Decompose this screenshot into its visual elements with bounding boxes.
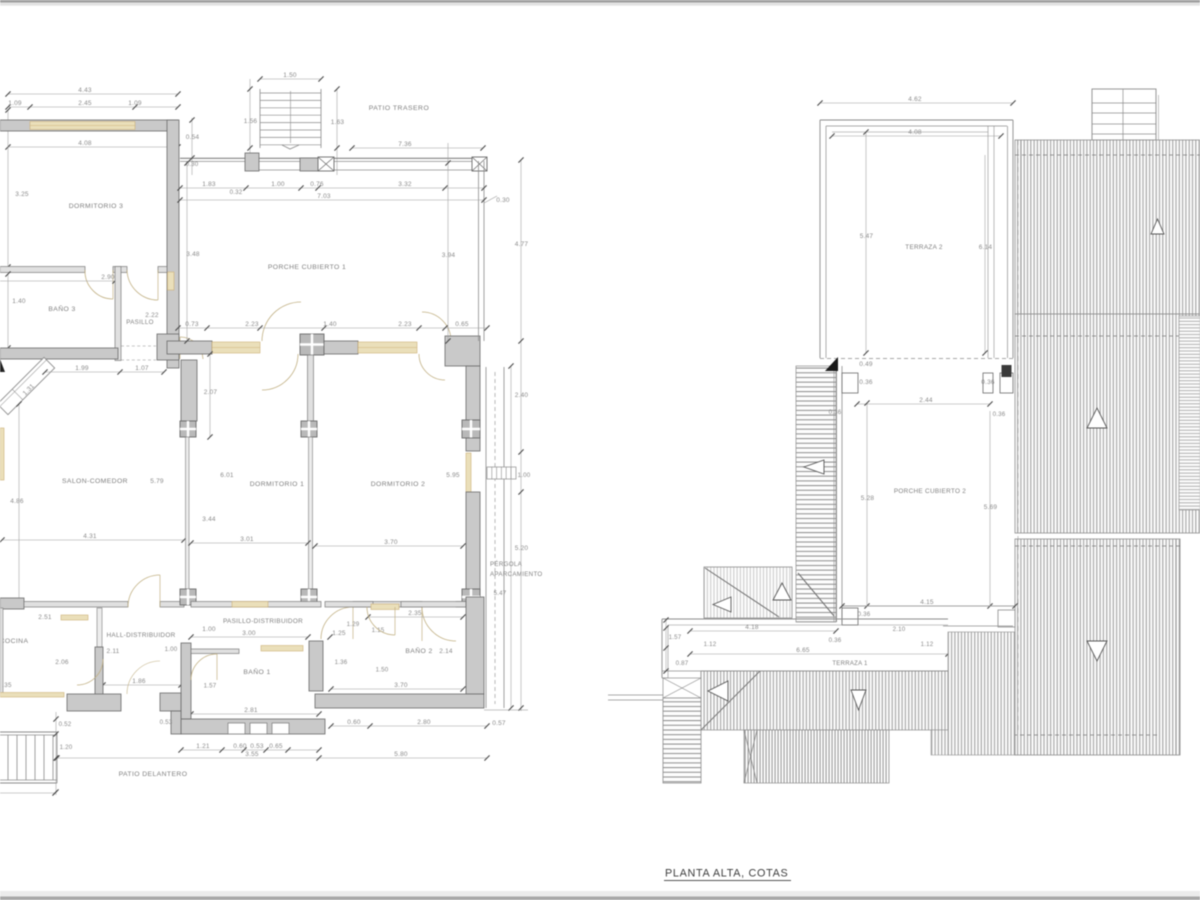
svg-text:4.18: 4.18: [745, 624, 759, 631]
svg-text:1.09: 1.09: [8, 100, 22, 107]
svg-text:2.06: 2.06: [55, 659, 69, 666]
svg-text:2.40: 2.40: [515, 392, 529, 399]
svg-text:5.47: 5.47: [860, 233, 874, 240]
svg-text:1.29: 1.29: [347, 621, 360, 628]
svg-text:1.00: 1.00: [165, 646, 178, 653]
svg-text:0.49: 0.49: [859, 361, 873, 368]
svg-text:2.90: 2.90: [101, 274, 115, 281]
svg-text:3.70: 3.70: [394, 682, 408, 689]
svg-text:1.00: 1.00: [271, 181, 285, 188]
svg-text:2.35: 2.35: [408, 610, 422, 617]
svg-text:4.08: 4.08: [908, 129, 922, 136]
svg-text:1.86: 1.86: [132, 678, 146, 685]
svg-text:COCINA: COCINA: [0, 638, 28, 645]
svg-text:PATIO TRASERO: PATIO TRASERO: [369, 105, 430, 112]
svg-text:0.54: 0.54: [186, 134, 200, 141]
svg-text:1.21: 1.21: [196, 743, 210, 750]
svg-text:1.56: 1.56: [244, 118, 258, 125]
svg-text:5.80: 5.80: [394, 751, 408, 758]
svg-text:1.20: 1.20: [60, 744, 73, 751]
svg-text:6.01: 6.01: [220, 472, 234, 479]
svg-text:4.15: 4.15: [920, 599, 934, 606]
svg-text:0.52: 0.52: [59, 721, 72, 728]
svg-text:2.51: 2.51: [38, 614, 52, 621]
svg-text:0.36: 0.36: [993, 411, 1006, 418]
svg-text:5.95: 5.95: [446, 472, 460, 479]
svg-text:PASILLO: PASILLO: [126, 319, 153, 326]
svg-text:3.70: 3.70: [384, 539, 398, 546]
svg-text:0.36: 0.36: [858, 611, 871, 618]
svg-text:6.14: 6.14: [979, 244, 993, 251]
svg-text:DORMITORIO 1: DORMITORIO 1: [250, 481, 305, 488]
svg-text:DORMITORIO 3: DORMITORIO 3: [69, 203, 124, 210]
svg-text:7.36: 7.36: [398, 141, 412, 148]
svg-text:0.36: 0.36: [829, 409, 842, 416]
svg-text:0.60: 0.60: [347, 719, 361, 726]
svg-text:1.40: 1.40: [12, 298, 26, 305]
svg-text:5.28: 5.28: [861, 495, 875, 502]
svg-text:2.81: 2.81: [244, 707, 258, 714]
svg-text:PATIO DELANTERO: PATIO DELANTERO: [119, 771, 188, 778]
svg-text:3.32: 3.32: [398, 181, 412, 188]
svg-text:1.00: 1.00: [202, 626, 216, 633]
svg-text:0.36: 0.36: [859, 379, 873, 386]
svg-text:1.25: 1.25: [332, 630, 346, 637]
svg-text:3.01: 3.01: [240, 536, 254, 543]
svg-text:0.53: 0.53: [250, 743, 264, 750]
svg-text:0.65: 0.65: [269, 743, 283, 750]
svg-text:2.11: 2.11: [107, 648, 120, 655]
svg-text:4.86: 4.86: [10, 498, 24, 505]
svg-text:1.12: 1.12: [921, 641, 934, 648]
svg-text:4.08: 4.08: [78, 140, 92, 147]
svg-text:SALON-COMEDOR: SALON-COMEDOR: [62, 478, 128, 485]
svg-text:1.15: 1.15: [372, 627, 385, 634]
svg-text:.35: .35: [2, 682, 12, 689]
svg-text:2.07: 2.07: [204, 389, 218, 396]
svg-text:BAÑO 1: BAÑO 1: [243, 667, 270, 676]
svg-text:0.87: 0.87: [676, 660, 689, 667]
svg-text:0.36: 0.36: [829, 637, 842, 644]
svg-text:PÉRGOLA: PÉRGOLA: [490, 561, 523, 568]
svg-text:2.23: 2.23: [245, 321, 259, 328]
svg-text:1.63: 1.63: [331, 119, 345, 126]
svg-text:PORCHE CUBIERTO 2: PORCHE CUBIERTO 2: [894, 488, 966, 495]
svg-text:4.62: 4.62: [908, 96, 922, 103]
svg-text:5.79: 5.79: [150, 478, 164, 485]
svg-text:3.44: 3.44: [202, 516, 216, 523]
svg-text:3.25: 3.25: [15, 191, 29, 198]
svg-text:TERRAZA 2: TERRAZA 2: [905, 244, 943, 251]
svg-text:BAÑO 3: BAÑO 3: [48, 304, 75, 313]
svg-text:2.14: 2.14: [439, 648, 453, 655]
svg-text:HALL-DISTRIBUIDOR: HALL-DISTRIBUIDOR: [106, 632, 175, 639]
svg-text:0.30: 0.30: [496, 197, 510, 204]
svg-text:TERRAZA 1: TERRAZA 1: [832, 661, 868, 667]
svg-text:APARCAMIENTO: APARCAMIENTO: [490, 571, 543, 578]
svg-text:2.10: 2.10: [893, 626, 906, 633]
svg-text:0.32: 0.32: [230, 189, 243, 196]
svg-text:1.50: 1.50: [376, 667, 389, 674]
svg-text:1.57: 1.57: [204, 683, 217, 690]
svg-text:2.22: 2.22: [145, 312, 159, 319]
svg-text:0.57: 0.57: [492, 720, 506, 727]
svg-text:5.47: 5.47: [494, 590, 507, 597]
svg-text:0.36: 0.36: [981, 379, 995, 386]
svg-text:2.23: 2.23: [398, 321, 412, 328]
svg-text:4.31: 4.31: [83, 533, 97, 540]
svg-text:7.03: 7.03: [317, 193, 331, 200]
svg-text:1.00: 1.00: [518, 472, 531, 479]
svg-text:0.76: 0.76: [310, 181, 324, 188]
svg-text:1.99: 1.99: [75, 365, 89, 372]
svg-text:DORMITORIO 2: DORMITORIO 2: [371, 481, 426, 488]
svg-text:2.45: 2.45: [78, 100, 92, 107]
svg-text:3.94: 3.94: [442, 252, 456, 259]
svg-text:4.77: 4.77: [515, 241, 529, 248]
svg-text:PLANTA ALTA, COTAS: PLANTA ALTA, COTAS: [665, 868, 788, 880]
svg-text:1.07: 1.07: [135, 365, 149, 372]
svg-text:6.65: 6.65: [796, 647, 810, 654]
svg-text:0.65: 0.65: [455, 321, 469, 328]
svg-text:BAÑO 2: BAÑO 2: [405, 646, 432, 655]
svg-text:1.36: 1.36: [335, 659, 348, 666]
svg-text:3.55: 3.55: [245, 751, 259, 758]
svg-text:1.40: 1.40: [323, 321, 337, 328]
svg-text:2.44: 2.44: [919, 397, 933, 404]
svg-text:3.48: 3.48: [186, 251, 200, 258]
svg-text:5.20: 5.20: [515, 545, 529, 552]
svg-text:1.50: 1.50: [283, 72, 297, 79]
svg-text:0.73: 0.73: [185, 321, 199, 328]
svg-text:0.60: 0.60: [233, 743, 247, 750]
svg-text:1.57: 1.57: [669, 634, 682, 641]
svg-text:3.00: 3.00: [242, 630, 256, 637]
svg-text:5.69: 5.69: [984, 504, 998, 511]
svg-text:4.43: 4.43: [78, 87, 92, 94]
svg-text:2.80: 2.80: [417, 719, 431, 726]
svg-text:1.09: 1.09: [128, 100, 142, 107]
svg-text:1.83: 1.83: [202, 181, 216, 188]
svg-text:0.53: 0.53: [160, 719, 173, 726]
svg-text:1.12: 1.12: [704, 641, 717, 648]
svg-text:PORCHE CUBIERTO 1: PORCHE CUBIERTO 1: [268, 264, 346, 271]
svg-text:PASILLO-DISTRIBUIDOR: PASILLO-DISTRIBUIDOR: [223, 618, 303, 625]
